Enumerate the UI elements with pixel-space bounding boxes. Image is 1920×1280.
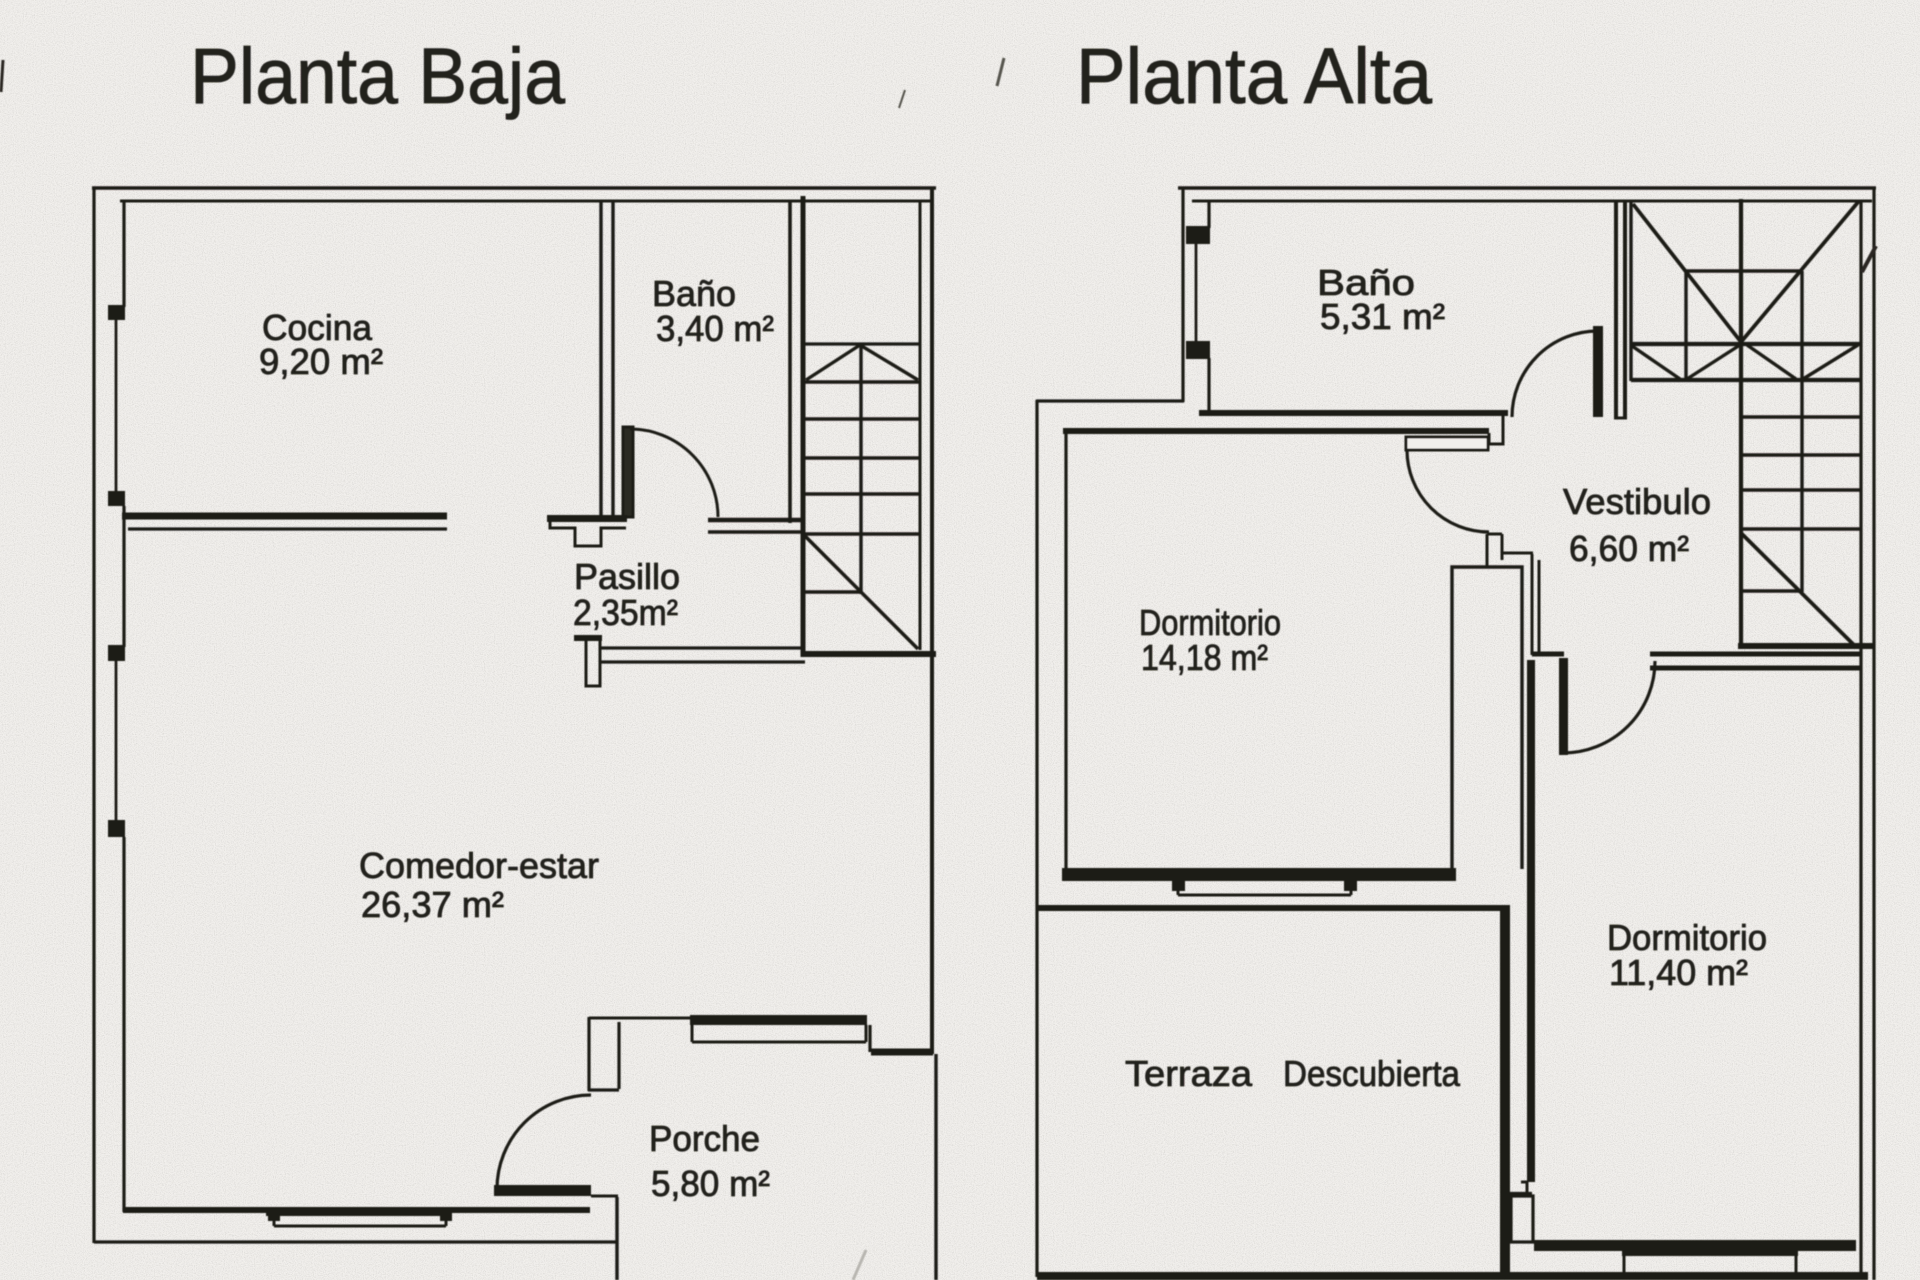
svg-text:Pasillo: Pasillo [574, 556, 680, 597]
svg-text:3,40 m²: 3,40 m² [656, 308, 774, 349]
svg-text:11,40 m²: 11,40 m² [1609, 952, 1748, 993]
svg-text:Vestibulo: Vestibulo [1563, 481, 1711, 522]
svg-text:9,20 m²: 9,20 m² [259, 341, 383, 382]
svg-text:5,31 m²: 5,31 m² [1320, 296, 1445, 337]
svg-text:Terraza: Terraza [1125, 1053, 1253, 1094]
svg-text:14,18 m²: 14,18 m² [1141, 637, 1268, 678]
svg-text:5,80 m²: 5,80 m² [651, 1163, 770, 1204]
svg-text:2,35m²: 2,35m² [573, 592, 678, 633]
svg-text:26,37 m²: 26,37 m² [361, 884, 504, 925]
svg-text:Porche: Porche [649, 1118, 760, 1159]
svg-text:Planta Baja: Planta Baja [190, 31, 565, 120]
svg-text:Descubierta: Descubierta [1283, 1053, 1461, 1094]
svg-text:6,60 m²: 6,60 m² [1569, 528, 1689, 569]
svg-text:Planta Alta: Planta Alta [1076, 31, 1432, 120]
svg-text:Comedor-estar: Comedor-estar [359, 845, 599, 886]
